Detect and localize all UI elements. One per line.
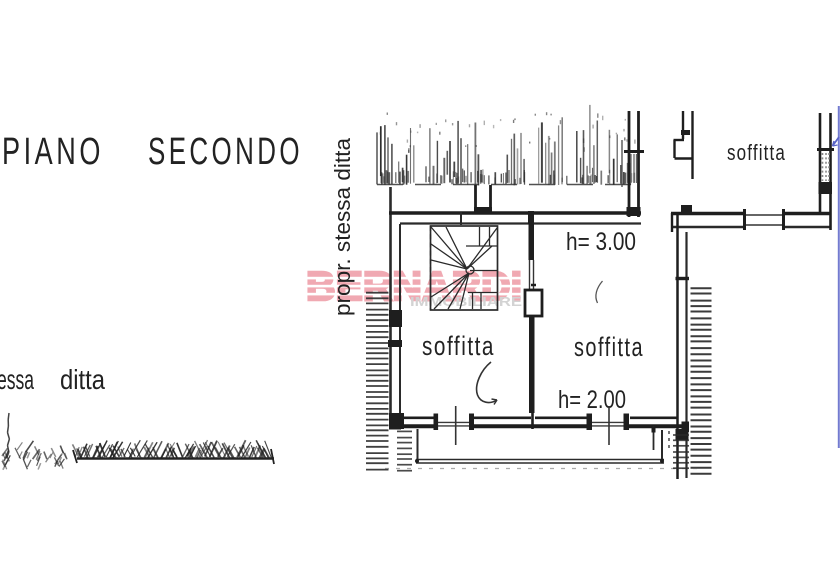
svg-text:essa: essa xyxy=(0,364,34,395)
svg-text:soffitta: soffitta xyxy=(727,140,786,165)
svg-text:propr. stessa ditta: propr. stessa ditta xyxy=(330,138,355,316)
svg-text:soffitta: soffitta xyxy=(574,332,644,362)
svg-text:soffitta: soffitta xyxy=(422,331,495,361)
svg-text:PIANO: PIANO xyxy=(2,131,104,173)
svg-text:h= 3.00: h= 3.00 xyxy=(566,228,636,256)
svg-text:IMMOBILIARE: IMMOBILIARE xyxy=(410,295,522,309)
svg-text:SECONDO: SECONDO xyxy=(148,131,303,173)
svg-text:h= 2.00: h= 2.00 xyxy=(558,386,626,414)
svg-text:ditta: ditta xyxy=(60,364,105,395)
